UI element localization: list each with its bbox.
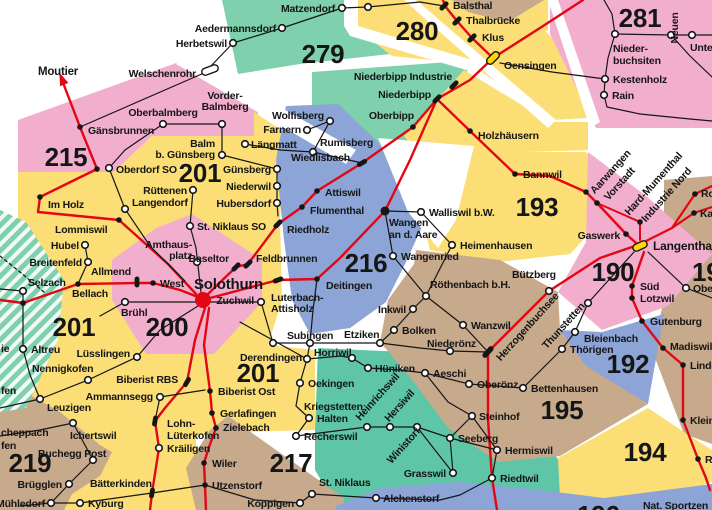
zone-number-label: 216 bbox=[345, 248, 388, 278]
zone-number-label: 215 bbox=[45, 142, 88, 172]
station-gaensbrunnen bbox=[77, 124, 83, 130]
station-bellach bbox=[75, 281, 81, 287]
station-leuzigen bbox=[37, 396, 44, 403]
station-label: Inkwil bbox=[378, 304, 406, 316]
station-label: Lüsslingen bbox=[77, 348, 130, 360]
station-label: Zielebach bbox=[223, 422, 270, 434]
station-label: Herbetswil bbox=[176, 38, 227, 50]
station-label: an d. Aare bbox=[389, 229, 438, 241]
station-wangenried bbox=[390, 253, 397, 260]
station-guensberg bbox=[274, 166, 281, 173]
station-oberbalmberg bbox=[160, 121, 167, 128]
station-selzach-bahn bbox=[20, 300, 26, 306]
station-laengmatt bbox=[242, 141, 249, 148]
station-hubersdorf bbox=[274, 200, 281, 207]
zone-number-label: 193 bbox=[516, 192, 559, 222]
station-label: Oensingen bbox=[504, 60, 556, 72]
station-recherswil bbox=[293, 433, 300, 440]
station-label: Aedermannsdorf bbox=[195, 23, 277, 35]
station-label: Oberbipp bbox=[369, 110, 414, 122]
station-label: Kyburg bbox=[88, 498, 124, 510]
station-wiler bbox=[201, 460, 207, 466]
station-st-niklaus-so bbox=[187, 223, 194, 230]
station-label: Niederbipp Industrie bbox=[354, 71, 452, 83]
station-ammannsegg bbox=[157, 394, 164, 401]
station-label: Lommiswil bbox=[55, 224, 108, 236]
station-bleienbach bbox=[572, 329, 579, 336]
station-wangen-an-der-aare bbox=[381, 207, 390, 216]
station-label: Hubersdorf bbox=[216, 198, 271, 210]
station-lotzwil bbox=[629, 295, 635, 301]
station-label: Niederönz bbox=[427, 338, 476, 350]
station-label: Heimenhausen bbox=[460, 240, 532, 252]
station-label: Selzach bbox=[28, 277, 66, 289]
station-label: Nat. Sportzen bbox=[643, 500, 708, 510]
station-label: Madiswil bbox=[670, 341, 712, 353]
station-aedermannsdorf bbox=[279, 25, 286, 32]
station-label: Utzenstorf bbox=[212, 480, 263, 492]
zone-number-label: 19 bbox=[692, 257, 712, 287]
station-alchenstorf bbox=[373, 495, 380, 502]
station-label: Längmatt bbox=[251, 139, 297, 151]
station-label: Bellach bbox=[72, 288, 108, 300]
station-walliswil bbox=[418, 209, 425, 216]
station-label: Neuen bbox=[669, 12, 681, 43]
station-label: Recherswil bbox=[304, 431, 358, 443]
zone-number-label: 200 bbox=[146, 312, 189, 342]
station-label: Bettenhausen bbox=[531, 383, 598, 395]
station-nennigkofen bbox=[85, 377, 92, 384]
station-riedtwil bbox=[489, 475, 496, 482]
station-label: St. Niklaus SO bbox=[197, 221, 266, 233]
station-label: Breitenfeld bbox=[29, 257, 82, 269]
station-aarwangen-vorstadt bbox=[583, 189, 589, 195]
zone-number-label: 280 bbox=[396, 16, 439, 46]
station-breitenfeld bbox=[85, 259, 92, 266]
station-label: Ro bbox=[701, 188, 712, 200]
station-label: Süd bbox=[640, 281, 659, 293]
zone-number-label: 217 bbox=[270, 448, 313, 478]
station-roethenbach bbox=[423, 293, 430, 300]
station-label: buchsiten bbox=[613, 55, 661, 67]
station-label: Thalbrücke bbox=[466, 15, 520, 27]
station-kraeiligen bbox=[156, 445, 163, 452]
station-oberoenz bbox=[466, 381, 473, 388]
station-bruehl bbox=[122, 299, 129, 306]
station-label: Günsberg bbox=[223, 164, 271, 176]
station-koppigen bbox=[297, 500, 304, 507]
zone-number-label: 219 bbox=[9, 448, 52, 478]
station-label: Klus bbox=[482, 32, 504, 44]
station-hard-mumenthal bbox=[594, 200, 600, 206]
station-solothurn bbox=[195, 292, 211, 308]
station-ichertswil bbox=[70, 420, 77, 427]
station-label: Farnern bbox=[263, 124, 301, 136]
station-thoerigen bbox=[559, 346, 566, 353]
zone-number-label: 201 bbox=[179, 158, 222, 188]
station-kyburg bbox=[77, 500, 84, 507]
station-thunstetten bbox=[585, 300, 592, 307]
station-vorder-balmberg bbox=[219, 121, 226, 128]
station-label: Balmberg bbox=[202, 101, 249, 113]
station-label: Koppigen bbox=[247, 498, 294, 510]
station-label: St. Niklaus bbox=[319, 477, 371, 489]
station-label: Holzhäusern bbox=[478, 130, 539, 142]
station-biberist-ost bbox=[207, 388, 213, 394]
station-label: Steinhof bbox=[479, 411, 520, 423]
station-label: Hermiswil bbox=[505, 445, 553, 457]
station-label: Linde bbox=[690, 360, 712, 372]
station-aeschi bbox=[422, 370, 429, 377]
station-label: Ka bbox=[700, 208, 712, 220]
station-bolken bbox=[391, 327, 398, 334]
station-label: Allmend bbox=[91, 266, 131, 278]
station-lommiswil bbox=[116, 217, 122, 223]
station-kestenholz bbox=[602, 76, 609, 83]
station-gerlafingen bbox=[209, 410, 215, 416]
station-luesslingen bbox=[134, 354, 141, 361]
station-wanzwil bbox=[460, 322, 467, 329]
station-utzenstorf bbox=[202, 482, 208, 488]
zone-number-label: 194 bbox=[624, 437, 668, 467]
station-label: Seeberg bbox=[458, 433, 498, 445]
station-label: Kräiligen bbox=[167, 443, 210, 455]
station-label: Moutier bbox=[38, 66, 79, 78]
station-label: Im Holz bbox=[48, 199, 84, 211]
station-selzach bbox=[20, 288, 27, 295]
station-steinhof bbox=[469, 413, 476, 420]
station-label: Biberist RBS bbox=[116, 374, 178, 386]
station-label: Bolken bbox=[402, 325, 436, 337]
station-label: Unter bbox=[690, 42, 712, 54]
station-label: Baseltor bbox=[189, 253, 230, 265]
station-label: Aeschi bbox=[433, 368, 467, 380]
station-label: Matzendorf bbox=[281, 3, 336, 15]
station-label: Attisholz bbox=[271, 303, 314, 315]
station-label: Riedholz bbox=[287, 224, 329, 236]
station-st-niklaus bbox=[309, 491, 316, 498]
station-label: Halten bbox=[317, 413, 348, 425]
station-label: Brügglen bbox=[18, 479, 62, 491]
station-label: Oberdorf SO bbox=[116, 164, 177, 176]
station-hubel bbox=[82, 242, 89, 249]
station-madiswil bbox=[660, 345, 666, 351]
station-label: Langendorf bbox=[132, 197, 188, 209]
station-label: Oberbalmberg bbox=[128, 107, 197, 119]
station-label: R bbox=[705, 454, 712, 466]
station-stop bbox=[365, 4, 372, 11]
station-label: Welschenrohr bbox=[129, 68, 197, 80]
station-label: cheppach bbox=[1, 427, 48, 439]
station-grasswil bbox=[450, 470, 457, 477]
station-label: Altreu bbox=[31, 344, 60, 356]
station-label: Wiedlisbach bbox=[291, 152, 350, 164]
station-label: Flumenthal bbox=[310, 205, 364, 217]
station-wolfisberg bbox=[327, 118, 334, 125]
station-label: Bannwil bbox=[523, 169, 562, 181]
zone-number-label: 281 bbox=[619, 3, 662, 33]
station-label: Kestenholz bbox=[613, 74, 667, 86]
station-label: Kriegstetten bbox=[304, 401, 363, 413]
station-stop bbox=[689, 32, 696, 39]
station-matzendorf bbox=[339, 5, 346, 12]
station-label: Oberönz bbox=[477, 379, 518, 391]
station-label: Rain bbox=[612, 90, 634, 102]
station-gaswerk bbox=[623, 231, 629, 237]
station-label: Alchenstorf bbox=[383, 493, 440, 505]
station-label: Deitingen bbox=[326, 280, 372, 292]
station-muehledorf bbox=[48, 500, 55, 507]
station-oekingen bbox=[297, 380, 304, 387]
station-stop bbox=[691, 210, 697, 216]
zone-number-label: 201 bbox=[53, 312, 96, 342]
station-label: Horriwil bbox=[314, 347, 352, 359]
city-label: Solothurn bbox=[194, 276, 263, 293]
zone-number-label: 192 bbox=[607, 349, 650, 379]
station-label: fen bbox=[1, 385, 16, 397]
station-zuchwil bbox=[258, 299, 265, 306]
station-label: Riedtwil bbox=[500, 473, 539, 485]
station-label: Klein bbox=[690, 415, 712, 427]
station-bannwil bbox=[512, 171, 518, 177]
station-heimenhausen bbox=[449, 242, 456, 249]
station-label: Gutenburg bbox=[650, 316, 702, 328]
zone-number-label: 196 bbox=[577, 500, 620, 510]
station-label: West bbox=[160, 278, 185, 290]
station-rain bbox=[601, 92, 608, 99]
station-langendorf bbox=[122, 206, 129, 213]
city-label: Langenthal bbox=[653, 239, 712, 253]
station-holzhaeusern bbox=[467, 128, 473, 134]
station-oberdorf-so-bahn bbox=[94, 166, 100, 172]
station-label: Grasswil bbox=[404, 468, 446, 480]
station-label: Subingen bbox=[287, 330, 333, 342]
station-stop bbox=[692, 191, 698, 197]
station-label: Balsthal bbox=[453, 0, 493, 12]
station-hersiwil bbox=[387, 424, 394, 431]
zone-boundary-band bbox=[596, 128, 712, 138]
station-label: Bützberg bbox=[512, 269, 556, 281]
station-label: Wangenried bbox=[401, 251, 459, 263]
station-seeberg bbox=[447, 435, 454, 442]
map-canvas: MoutierWelschenrohrHerbetswilAedermannsd… bbox=[0, 0, 712, 510]
station-label: Bätterkinden bbox=[90, 478, 152, 490]
station-label: ie bbox=[1, 343, 10, 355]
station-halten bbox=[306, 415, 313, 422]
tariff-zone-map: MoutierWelschenrohrHerbetswilAedermannsd… bbox=[0, 0, 712, 510]
station-hermiswil bbox=[494, 447, 501, 454]
station-oberbipp bbox=[410, 124, 416, 130]
station-niederbuchsiten bbox=[612, 31, 619, 38]
station-label: Lüterkofen bbox=[167, 430, 219, 442]
station-label: Wangen bbox=[389, 217, 428, 229]
station-label: Oekingen bbox=[308, 378, 354, 390]
station-inkwil bbox=[410, 306, 417, 313]
station-allmend bbox=[135, 277, 140, 288]
station-label: Bleienbach bbox=[584, 333, 638, 345]
station-label: Niederwil bbox=[226, 181, 271, 193]
station-label: Gaswerk bbox=[578, 230, 621, 242]
station-label: Lotzwil bbox=[640, 293, 674, 305]
station-label: Nennigkofen bbox=[32, 363, 93, 375]
station-label: Wiler bbox=[212, 458, 237, 470]
station-label: Leuzigen bbox=[47, 402, 91, 414]
station-gutenburg bbox=[639, 318, 645, 324]
station-linde bbox=[680, 362, 686, 368]
station-bruegglen bbox=[66, 481, 73, 488]
station-hueniken bbox=[365, 365, 372, 372]
station-label: Nieder- bbox=[613, 43, 648, 55]
station-label: Wolfisberg bbox=[272, 110, 324, 122]
station-heinrichswil bbox=[364, 424, 371, 431]
station-label: Gänsbrunnen bbox=[88, 125, 154, 137]
station-altreu bbox=[20, 346, 27, 353]
station-attiswil bbox=[314, 188, 320, 194]
station-deitingen bbox=[314, 276, 320, 282]
station-stop bbox=[695, 456, 701, 462]
station-oberdorf-so bbox=[106, 165, 113, 172]
station-label: Hubel bbox=[51, 240, 79, 252]
station-im-holz bbox=[37, 194, 43, 200]
station-label: Röthenbach b.H. bbox=[430, 279, 511, 291]
station-niederwil bbox=[274, 183, 281, 190]
station-label: Etziken bbox=[344, 329, 379, 341]
station-label: Wanzwil bbox=[471, 320, 511, 332]
zone-number-label: 201 bbox=[237, 358, 280, 388]
station-label: Rumisberg bbox=[320, 137, 373, 149]
zone-number-label: 195 bbox=[541, 395, 584, 425]
station-label: Ichertswil bbox=[70, 430, 117, 442]
station-label: Lohn- bbox=[167, 418, 196, 430]
station-subingen bbox=[270, 340, 277, 347]
zone-number-label: 279 bbox=[302, 39, 345, 69]
station-klein bbox=[680, 417, 686, 423]
zone-number-label: 190 bbox=[592, 257, 635, 287]
station-label: Walliswil b.W. bbox=[429, 207, 495, 219]
station-label: Feldbrunnen bbox=[256, 253, 317, 265]
station-label: Attiswil bbox=[325, 187, 361, 199]
station-stop bbox=[683, 285, 690, 292]
station-derendingen bbox=[304, 356, 311, 363]
station-west bbox=[150, 280, 156, 286]
station-label: Niederbipp bbox=[378, 89, 431, 101]
station-label: Ammannsegg bbox=[86, 391, 153, 403]
station-label: Zuchwil bbox=[216, 295, 254, 307]
station-bettenhausen bbox=[520, 385, 527, 392]
station-label: Gerlafingen bbox=[220, 408, 276, 420]
station-label: Brühl bbox=[121, 307, 148, 319]
station-flumenthal bbox=[299, 204, 305, 210]
station-label: Mühledorf bbox=[0, 498, 46, 510]
station-herbetswil bbox=[230, 40, 237, 47]
station-farnern bbox=[304, 127, 311, 134]
